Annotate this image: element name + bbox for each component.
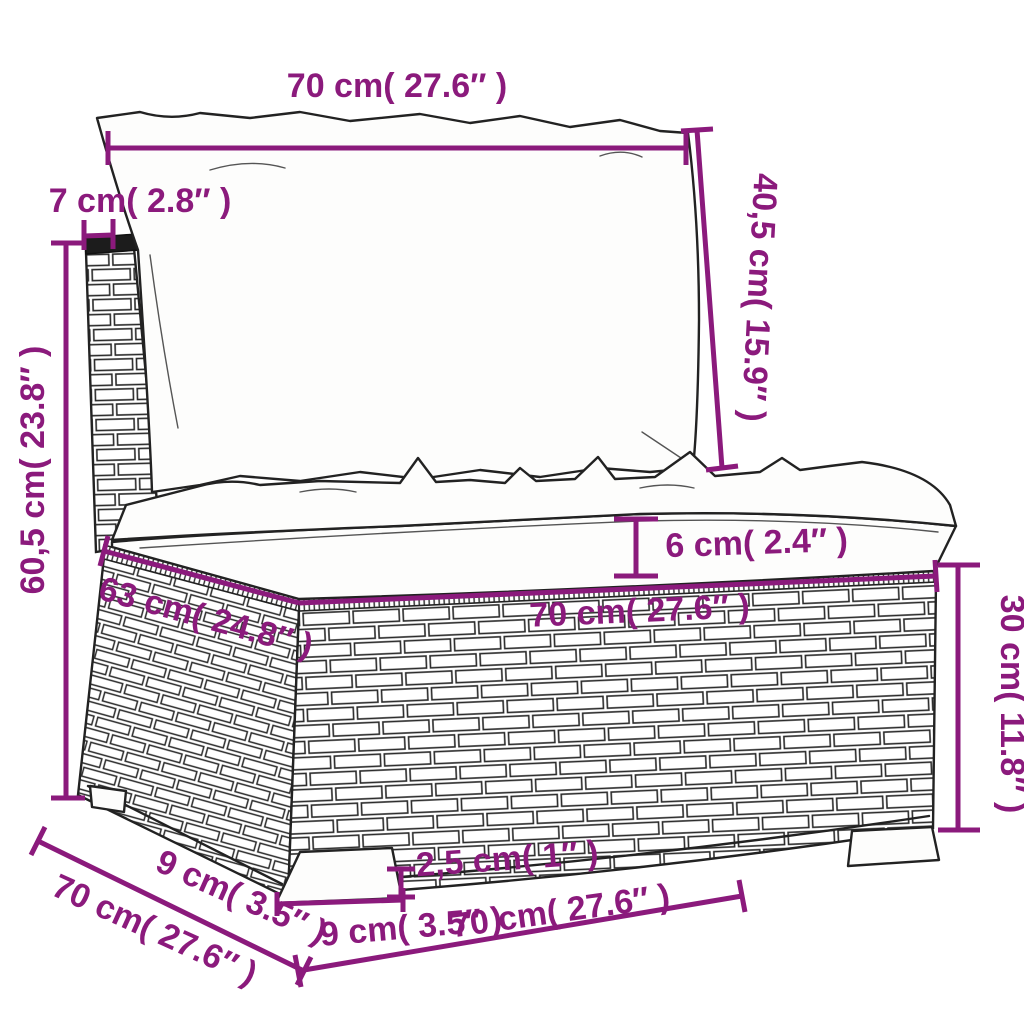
dim-back-frame-depth-label: 7 cm( 2.8″ ) bbox=[49, 182, 232, 220]
dim-base-height: 30 cm( 11.8″ ) bbox=[938, 565, 1024, 830]
dim-cushion-thickness-label: 6 cm( 2.4″ ) bbox=[665, 521, 849, 565]
product-dimension-diagram: 70 cm( 27.6″ ) 7 cm( 2.8″ ) 60,5 cm( 23.… bbox=[0, 0, 1024, 1024]
sofa-drawing bbox=[78, 112, 956, 903]
foot-back-left bbox=[90, 786, 126, 812]
dim-total-height-label: 60,5 cm( 23.8″ ) bbox=[14, 346, 52, 595]
dim-total-height: 60,5 cm( 23.8″ ) bbox=[14, 243, 85, 798]
foot-front-right bbox=[848, 827, 939, 866]
diagram-canvas: 70 cm( 27.6″ ) 7 cm( 2.8″ ) 60,5 cm( 23.… bbox=[0, 0, 1024, 1024]
dim-top-width-label: 70 cm( 27.6″ ) bbox=[287, 67, 507, 105]
dim-base-height-label: 30 cm( 11.8″ ) bbox=[993, 595, 1024, 814]
back-cushion bbox=[97, 112, 699, 492]
dim-back-cushion-height-label: 40,5 cm( 15.9″ ) bbox=[734, 172, 785, 422]
dim-bottom-width-label: 70 cm( 27.6″ ) bbox=[449, 877, 673, 945]
